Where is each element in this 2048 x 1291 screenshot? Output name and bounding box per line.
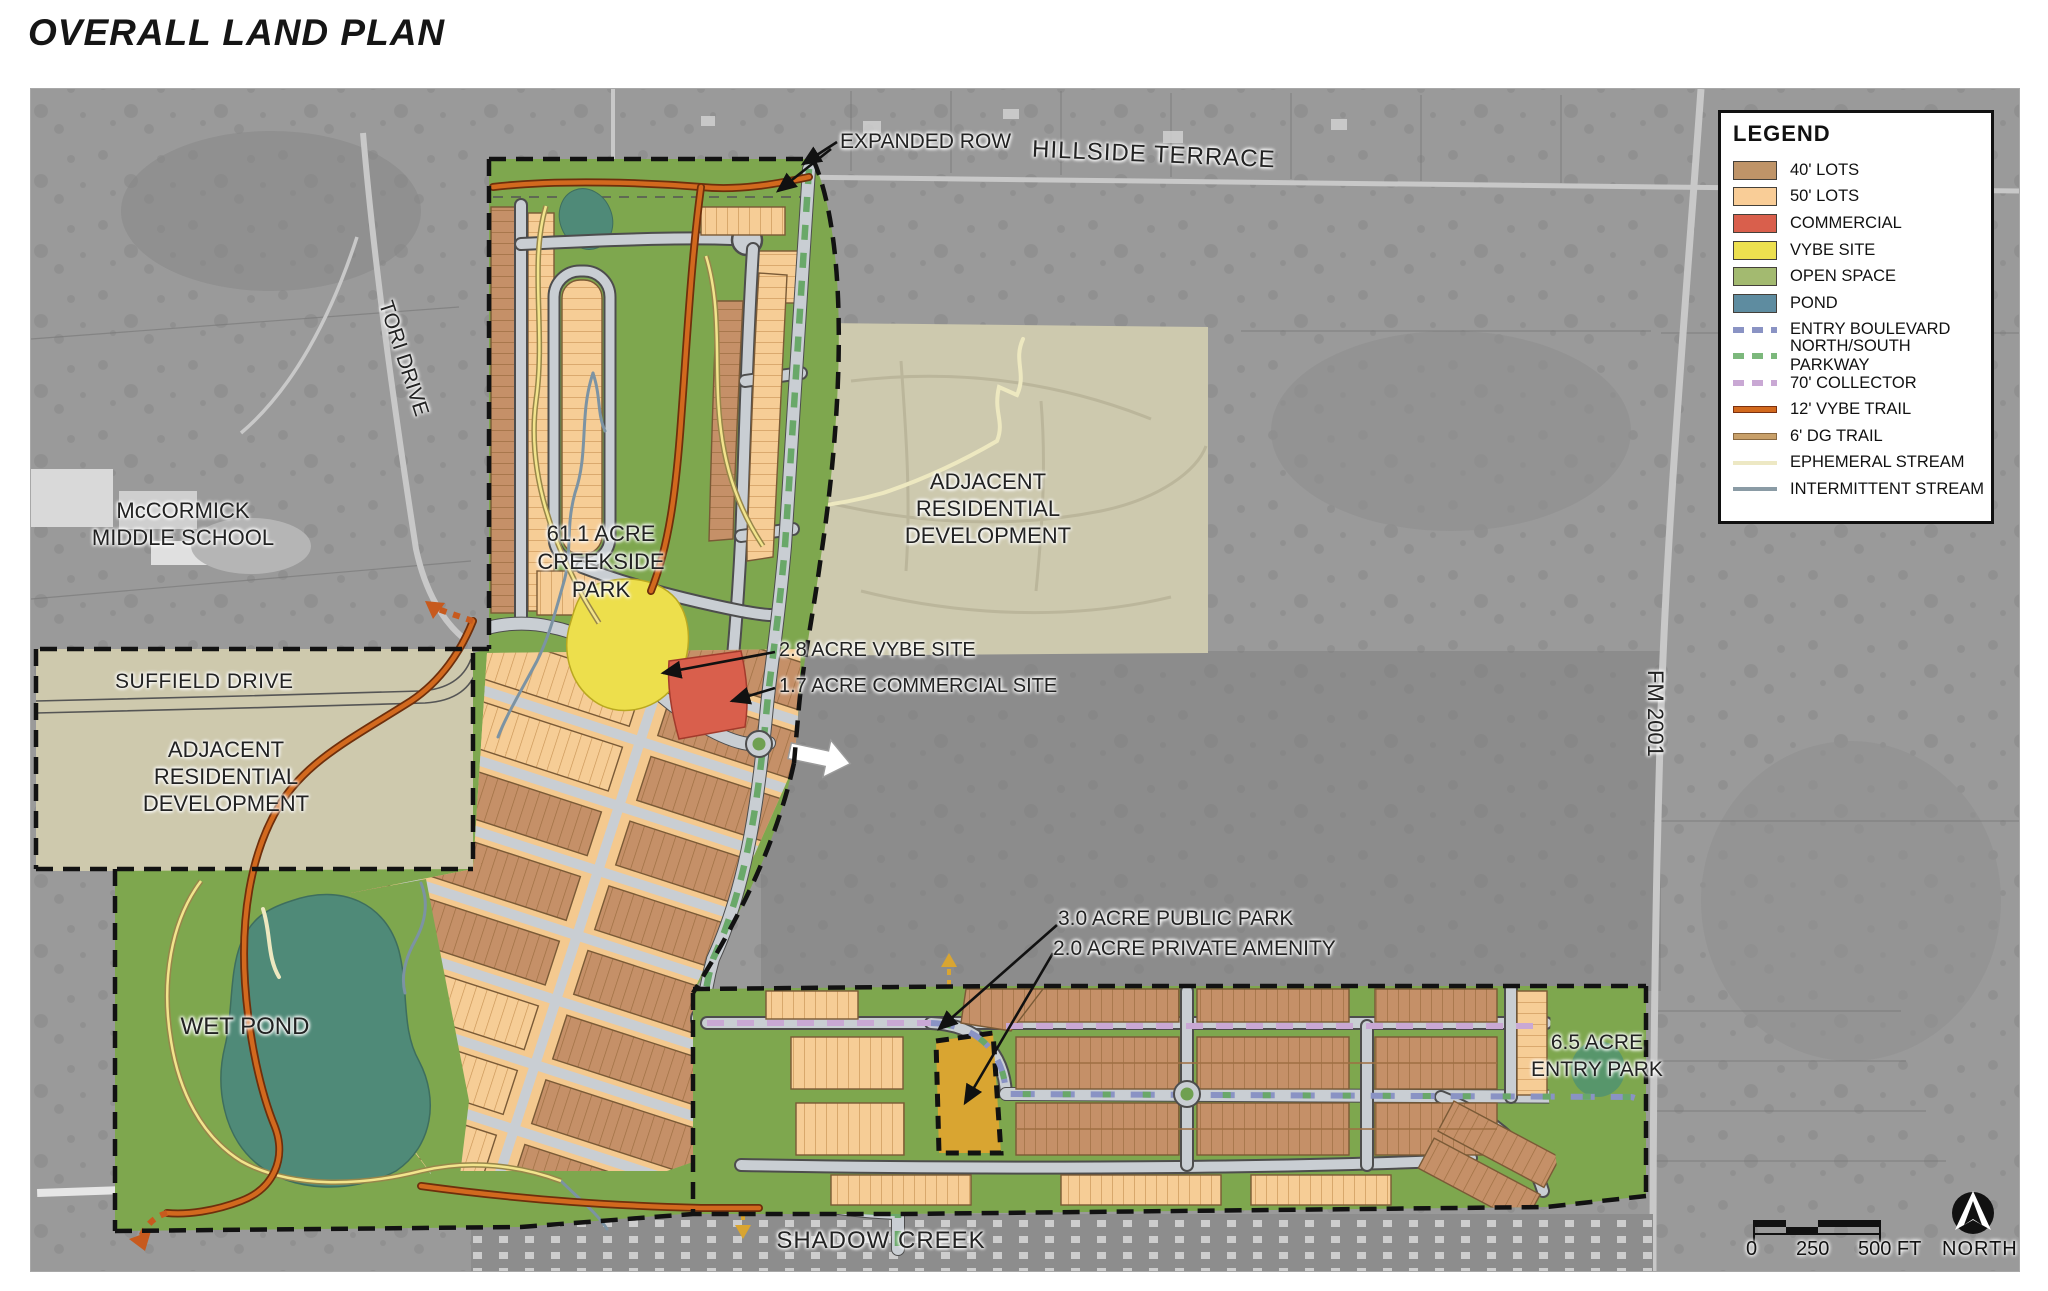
north-label: NORTH — [1942, 1238, 2018, 1261]
intermittent-stream-swatch — [1733, 487, 1777, 491]
shadow-creek-subdivision — [471, 1214, 1653, 1271]
mccormick-school-label: McCORMICK MIDDLE SCHOOL — [92, 497, 274, 551]
scale-mid-label: 250 — [1796, 1238, 1829, 1261]
50-lots-swatch — [1733, 187, 1777, 206]
legend-item-pond: POND — [1733, 290, 1991, 317]
entry-park — [1549, 986, 1646, 1201]
shadow-creek-label: SHADOW CREEK — [776, 1227, 985, 1255]
adjacent-development-left-label: ADJACENT RESIDENTIAL DEVELOPMENT — [143, 736, 309, 817]
legend-item-ns-parkway: NORTH/SOUTH PARKWAY — [1733, 343, 1991, 370]
private-amenity-shape — [936, 1033, 1001, 1153]
legend-item-open-space: OPEN SPACE — [1733, 263, 1991, 290]
legend-item-intermittent-stream: INTERMITTENT STREAM — [1733, 476, 1991, 503]
expanded-row-label: EXPANDED ROW — [840, 130, 1011, 154]
vybe-trail-swatch — [1733, 406, 1777, 413]
suffield-drive-label: SUFFIELD DRIVE — [115, 670, 294, 694]
legend-item-50-lots: 50' LOTS — [1733, 184, 1991, 211]
40-lots-swatch — [1733, 161, 1777, 180]
land-plan-page: OVERALL LAND PLAN — [0, 0, 2048, 1291]
entry-boulevard-swatch — [1733, 327, 1777, 333]
wet-pond-label: WET POND — [181, 1013, 310, 1041]
commercial-swatch — [1733, 214, 1777, 233]
commercial-site-label: 1.7 ACRE COMMERCIAL SITE — [779, 675, 1057, 698]
legend-item-commercial: COMMERCIAL — [1733, 210, 1991, 237]
vybe-site-swatch — [1733, 241, 1777, 260]
open-space-swatch — [1733, 267, 1777, 286]
legend-title: LEGEND — [1733, 121, 1991, 147]
page-title: OVERALL LAND PLAN — [28, 12, 445, 54]
legend-item-40-lots: 40' LOTS — [1733, 157, 1991, 184]
ephemeral-stream-swatch — [1733, 461, 1777, 465]
pond-swatch — [1733, 294, 1777, 313]
scale-zero-label: 0 — [1746, 1238, 1757, 1261]
legend-item-vybe-trail: 12' VYBE TRAIL — [1733, 396, 1991, 423]
vybe-site-label: 2.8 ACRE VYBE SITE — [779, 639, 976, 662]
public-park-label: 3.0 ACRE PUBLIC PARK — [1058, 907, 1293, 931]
ns-parkway-swatch — [1733, 353, 1777, 359]
collector-swatch — [1733, 380, 1777, 386]
private-amenity-label: 2.0 ACRE PRIVATE AMENITY — [1053, 937, 1336, 961]
adjacent-development-right-label: ADJACENT RESIDENTIAL DEVELOPMENT — [905, 468, 1071, 549]
entry-park-label: 6.5 ACRE ENTRY PARK — [1531, 1029, 1663, 1083]
fm-2001-label: FM 2001 — [1642, 670, 1668, 757]
legend-item-dg-trail: 6' DG TRAIL — [1733, 423, 1991, 450]
legend-item-vybe-site: VYBE SITE — [1733, 237, 1991, 264]
legend-item-ephemeral-stream: EPHEMERAL STREAM — [1733, 450, 1991, 477]
dg-trail-swatch — [1733, 433, 1777, 440]
legend-panel: LEGEND 40' LOTS 50' LOTS COMMERCIAL VYBE… — [1718, 110, 1994, 524]
creekside-park-label: 61.1 ACRE CREEKSIDE PARK — [537, 520, 664, 604]
scale-end-label: 500 FT — [1858, 1238, 1921, 1261]
